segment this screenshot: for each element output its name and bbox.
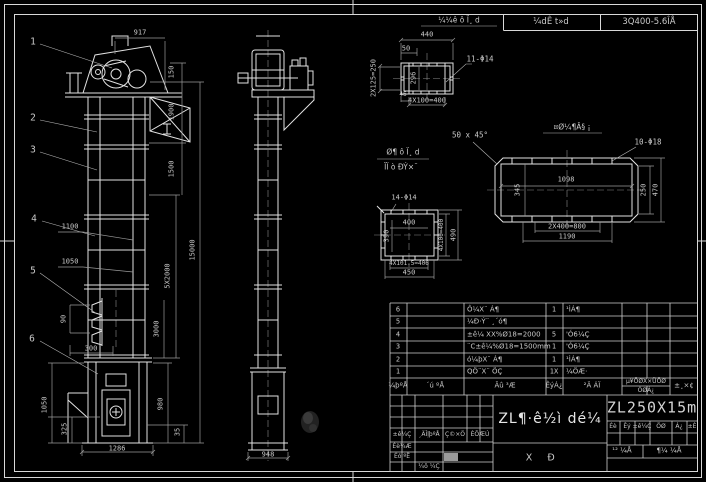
bom-row-material: ¹ÌÁ¶ (566, 307, 580, 314)
bom-row-no: 1 (396, 369, 400, 376)
detail-b-bottom-800: 2X400=800 (548, 224, 586, 231)
dim-sections: 5X2000 (165, 263, 172, 288)
dim-boot-35: 35 (175, 428, 182, 436)
rev-col-mark: ±ê¼Ç (393, 432, 412, 438)
detail-b-inner-width: 1098 (558, 177, 575, 184)
bom-row-qty: 1 (552, 307, 556, 314)
detail-b-bottom-1190: 1190 (559, 234, 576, 241)
part-number-4: 4 (31, 214, 37, 224)
bom-row-name: Ô¼X¨ Á¶ (467, 307, 499, 314)
part-number-3: 3 (30, 145, 36, 155)
dim-boot-980: 980 (158, 398, 165, 411)
bom-row-material: 'Ó6¼Ç (566, 344, 590, 351)
drawing-linework (0, 0, 706, 482)
part-number-1: 1 (30, 37, 36, 47)
bom-header-name: Ãû ³Æ (494, 383, 515, 390)
detail-c-right-490: 490 (451, 229, 458, 242)
info-cell: ±ê¼Ç (633, 424, 652, 430)
sign-row-design: Éè¼Æ (392, 444, 411, 450)
detail-a-holes: 11-Φ14 (466, 55, 493, 63)
detail-c-holes: 14-Φ14 (391, 195, 416, 202)
detail-b-right-250: 250 (641, 184, 648, 197)
dim-base-width: 1286 (109, 446, 126, 453)
bom-row-name: ¼Ð·Ý¨ ¸´ó¶ (467, 319, 507, 326)
pages-current: ¶¼ ¼Å (656, 448, 681, 455)
bom-row-name: ±ê¼ XX%Ø18=2000 (467, 332, 541, 339)
sheet-header-cell-1: ¼dÊ t»d (533, 18, 569, 27)
info-cell: Éè (609, 424, 616, 430)
pages-total: ¹² ¼Å (612, 448, 631, 455)
dim-seg-150: 150 (169, 66, 176, 79)
bom-row-qty: 1X (550, 369, 558, 376)
bom-header-material: ²Ä ÁÏ (584, 383, 601, 390)
dim-bucket-300: 300 (85, 346, 98, 353)
bom-row-name: ó¼þX¨ Á¶ (467, 357, 502, 364)
dim-bucket-90: 90 (61, 315, 68, 323)
bom-row-no: 3 (396, 344, 400, 351)
sheet-header-cell-2: 3Q400-5.6ÎÅ (622, 18, 675, 27)
bom-row-material: ¼ÖÆ· (566, 369, 587, 376)
side-view (238, 36, 314, 450)
bom-row-no: 6 (396, 307, 400, 314)
detail-a-left-dim: 2X125=250 (371, 59, 378, 97)
cad-drawing-sheet: ¼dÊ t»d 3Q400-5.6ÎÅ 1 2 3 4 5 6 917 150 … (0, 0, 706, 482)
part-number-6: 6 (29, 334, 35, 344)
bom-row-material: 'Ó6¼Ç (566, 332, 590, 339)
stage-mark-2: Ð (547, 453, 554, 463)
detail-a-inner-dim: 296 (411, 72, 418, 85)
rev-col-date: ÈÕÆÚ (471, 432, 490, 438)
info-cell: ±È (688, 424, 697, 430)
bom-row-material: ¹ÌÁ¶ (566, 357, 580, 364)
drawing-title: ZL¶·ê½ì dé¼ (498, 412, 601, 426)
front-view (65, 36, 190, 443)
detail-c-bottom-dim: 4X101.5=406 (389, 261, 429, 267)
bom-row-name: ¨C±ê¼%Ø18=1500mm (467, 344, 551, 351)
detail-a-440: 440 (421, 32, 434, 39)
sign-row-standard: ¼ô ¼Ç (418, 464, 439, 470)
bom-header-weight-bottom: ÖØÁ¿ (638, 388, 655, 394)
bom-row-qty: 1 (552, 344, 556, 351)
stage-mark-1: Χ (526, 453, 533, 463)
bom-row-no: 5 (396, 319, 400, 326)
dim-side-base: 948 (262, 452, 275, 459)
detail-b-chamfer-note: 50 x 45° (452, 131, 488, 139)
detail-c-bottom-450: 450 (403, 270, 416, 277)
bom-row-no: 4 (396, 332, 400, 339)
dim-lower-3000: 3000 (154, 321, 161, 338)
info-cell: Á¿ (675, 424, 682, 430)
dim-boot-325: 325 (62, 423, 69, 436)
detail-b-label: ¤Ø¼¶Â§ ¡ (554, 123, 591, 131)
rev-col-sign: Ç©×Ö (445, 432, 465, 438)
detail-a-label: ¼¼ê ô Ï¸ d (438, 16, 480, 24)
info-cell: ÖØ (656, 424, 665, 430)
part-number-2: 2 (30, 113, 36, 123)
detail-c-inner-height: 390 (384, 230, 391, 243)
detail-a-bottom-dim: 4X100=400 (408, 98, 446, 105)
detail-b-holes: 10-Φ18 (634, 138, 661, 146)
drawing-number: ZL250X15m (607, 401, 697, 416)
detail-c-label-1: Ø¶ ô Ï¸ d (386, 148, 419, 156)
dim-seg-1500: 1500 (169, 161, 176, 178)
bom-header-qty: ÊýÁ¿ (545, 383, 562, 390)
smudge-artifact (301, 411, 319, 433)
detail-c-right-dim: 4X100=400 (439, 219, 445, 252)
dim-seg-1900: 1900 (169, 104, 176, 121)
bom-header-no: ¼þºÅ (388, 383, 407, 390)
bom-row-qty: 5 (552, 332, 556, 339)
dim-head-width: 917 (134, 30, 147, 37)
bom-row-name: QÖ¨X¨ ÖÇ (467, 369, 502, 376)
dim-overall-height: 15000 (190, 239, 197, 260)
rev-col-docno: ¸ÄÎļþºÅ (418, 432, 439, 438)
detail-c-label-2: ÏÏ ò ÐÝ×¨ (384, 163, 418, 171)
bom-header-code: ´ú ºÅ (426, 383, 444, 390)
bom-row-no: 2 (396, 357, 400, 364)
highlighted-cell (444, 453, 458, 461)
bom-header-remark: ±¸×¢ (674, 383, 694, 390)
sign-row-check: Éó ºË (394, 454, 410, 460)
bom-header-weight-top: µ¥ÖØX×ÜÖØ (626, 379, 666, 385)
detail-c-inner-width: 400 (403, 220, 416, 227)
detail-a-46: 46 (399, 92, 406, 98)
part-number-5: 5 (30, 266, 36, 276)
dim-elev-1100: 1100 (62, 224, 79, 231)
info-cell: Êý (623, 424, 630, 430)
detail-b-right-470: 470 (653, 184, 660, 197)
dim-elev-1050: 1050 (62, 259, 79, 266)
dim-boot-1050: 1050 (42, 397, 49, 414)
bom-row-qty: 1 (552, 357, 556, 364)
detail-a-50: 50 (402, 46, 410, 53)
detail-b-inner-height: 345 (515, 184, 522, 197)
